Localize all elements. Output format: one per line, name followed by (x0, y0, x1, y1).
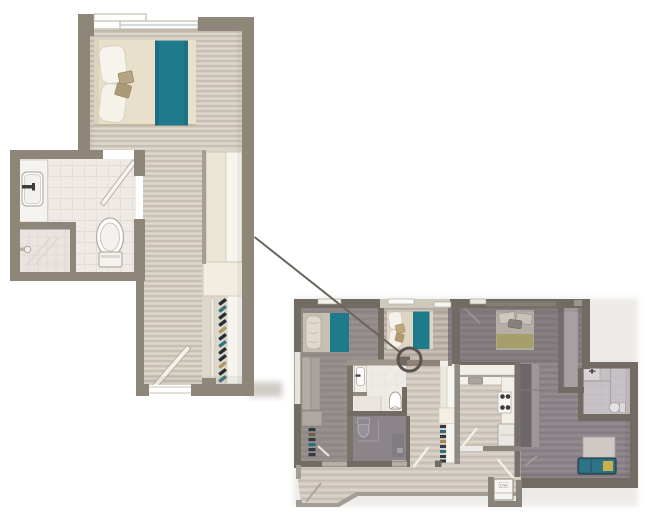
svg-text:D/W: D/W (500, 484, 508, 488)
